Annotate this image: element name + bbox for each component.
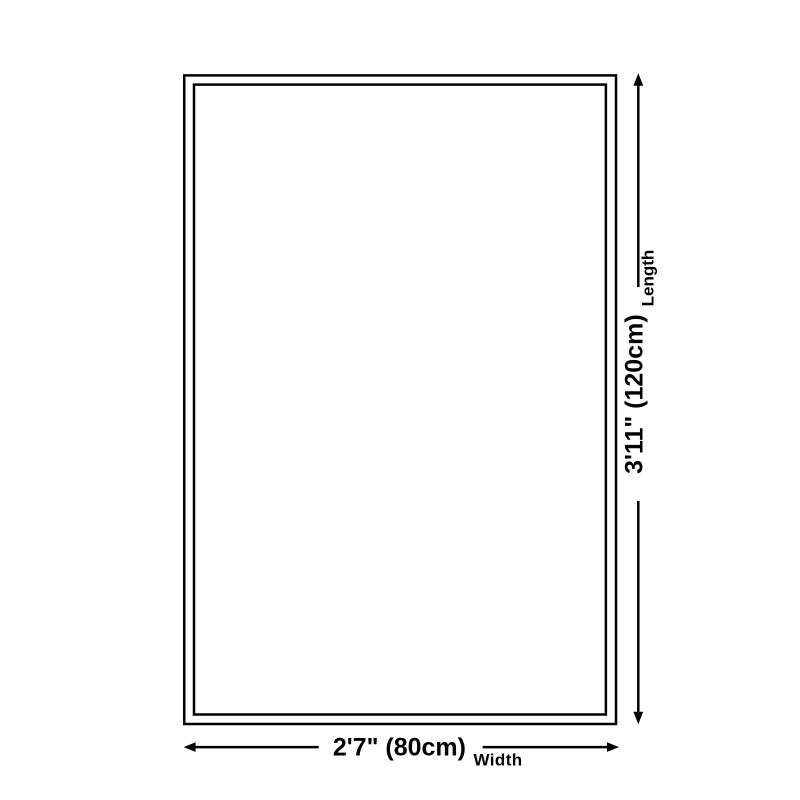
- svg-text:Width: Width: [474, 750, 523, 769]
- svg-text:3'11" (120cm): 3'11" (120cm): [620, 314, 648, 474]
- svg-text:Length: Length: [639, 250, 658, 307]
- svg-text:2'7" (80cm): 2'7" (80cm): [333, 734, 466, 762]
